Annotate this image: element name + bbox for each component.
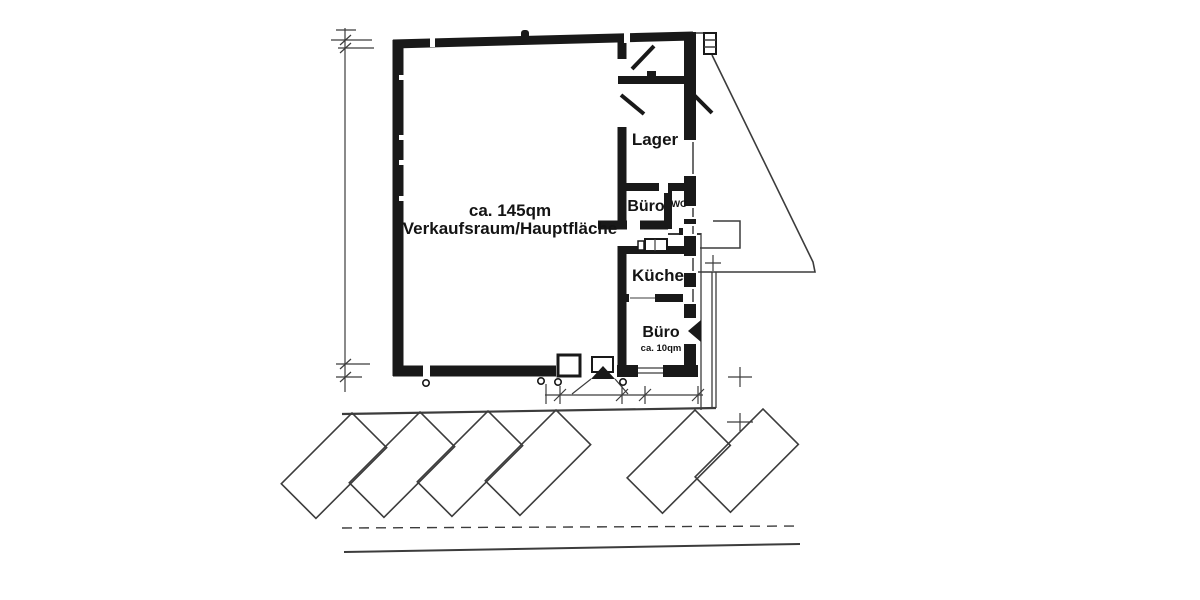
top-door-hinge <box>521 30 529 40</box>
dashed-boundary-line <box>342 526 800 528</box>
parking-space <box>349 412 454 517</box>
main-room-label-area: ca. 145qm <box>469 201 551 220</box>
hinge-circle <box>538 378 544 384</box>
door-leaf <box>632 46 654 69</box>
survey-cross <box>705 255 721 271</box>
survey-cross <box>728 367 752 387</box>
buero2-label: Büro <box>642 324 680 341</box>
street-line <box>344 544 800 552</box>
buero2-area-label: ca. 10qm <box>641 343 682 354</box>
top-wall <box>393 36 693 44</box>
parking-spaces-right <box>627 409 798 513</box>
hinge-circle <box>620 379 626 385</box>
wc-label: WC <box>671 199 687 210</box>
dimension-lines-bottom <box>545 384 704 404</box>
floor-plan-page: ca. 145qm Verkaufsraum/Hauptfläche Lager… <box>0 0 1200 600</box>
hinge-circle <box>423 380 429 386</box>
floor-plan-drawing: ca. 145qm Verkaufsraum/Hauptfläche Lager… <box>0 0 1200 600</box>
lager-label: Lager <box>632 130 679 149</box>
kueche-label: Küche <box>632 266 684 285</box>
door-leaf <box>694 95 712 113</box>
exterior-step-symbol <box>700 221 740 248</box>
parking-space <box>281 413 386 518</box>
entrance-pillar <box>558 355 580 376</box>
property-boundary-line <box>693 33 815 431</box>
street-edge-line <box>342 408 716 414</box>
sink-symbol <box>645 239 667 251</box>
pillar-symbol <box>704 33 716 54</box>
hinge-circle <box>555 379 561 385</box>
parking-area <box>281 408 800 552</box>
parking-space <box>417 411 522 516</box>
buero-label: Büro <box>627 198 665 215</box>
parking-space <box>485 410 590 515</box>
parking-spaces-left <box>281 410 590 518</box>
dimension-lines-left <box>331 28 374 392</box>
door-leaf <box>621 95 644 114</box>
main-room-label-name: Verkaufsraum/Hauptfläche <box>403 219 617 238</box>
